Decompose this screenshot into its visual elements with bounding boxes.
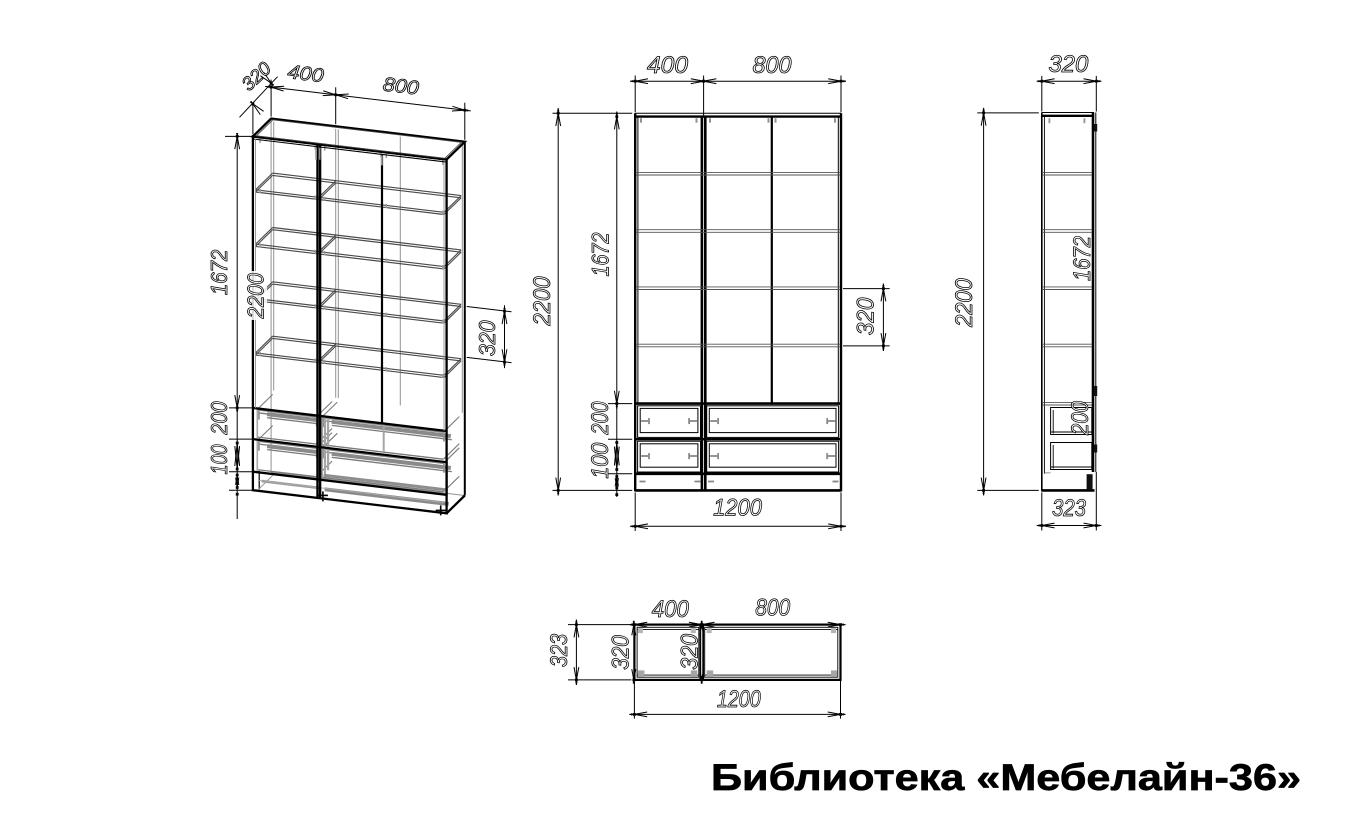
svg-text:2200: 2200 — [529, 276, 556, 327]
svg-text:400: 400 — [286, 61, 325, 87]
svg-text:800: 800 — [382, 73, 421, 99]
svg-text:1200: 1200 — [713, 494, 762, 521]
svg-text:200: 200 — [587, 401, 614, 435]
svg-text:320: 320 — [474, 320, 500, 356]
svg-text:2200: 2200 — [951, 278, 978, 328]
svg-text:1200: 1200 — [717, 686, 761, 713]
svg-text:2200: 2200 — [243, 273, 269, 319]
svg-text:323: 323 — [1052, 495, 1087, 522]
svg-text:800: 800 — [753, 52, 793, 79]
svg-text:320: 320 — [676, 633, 703, 669]
svg-text:320: 320 — [608, 635, 635, 670]
svg-text:800: 800 — [755, 595, 791, 622]
svg-text:400: 400 — [652, 596, 690, 623]
svg-text:400: 400 — [647, 52, 689, 79]
svg-text:200: 200 — [206, 401, 232, 435]
svg-text:1672: 1672 — [206, 250, 232, 296]
svg-text:323: 323 — [546, 633, 573, 667]
svg-text:1672: 1672 — [1069, 236, 1096, 281]
svg-text:320: 320 — [238, 58, 276, 95]
svg-text:1672: 1672 — [588, 233, 615, 277]
svg-text:100: 100 — [587, 442, 614, 479]
svg-text:200: 200 — [1067, 400, 1094, 435]
svg-text:100: 100 — [206, 444, 232, 474]
svg-text:Библиотека «Мебелайн-36»: Библиотека «Мебелайн-36» — [711, 757, 1301, 798]
svg-text:320: 320 — [853, 297, 880, 335]
svg-text:320: 320 — [1048, 51, 1089, 78]
